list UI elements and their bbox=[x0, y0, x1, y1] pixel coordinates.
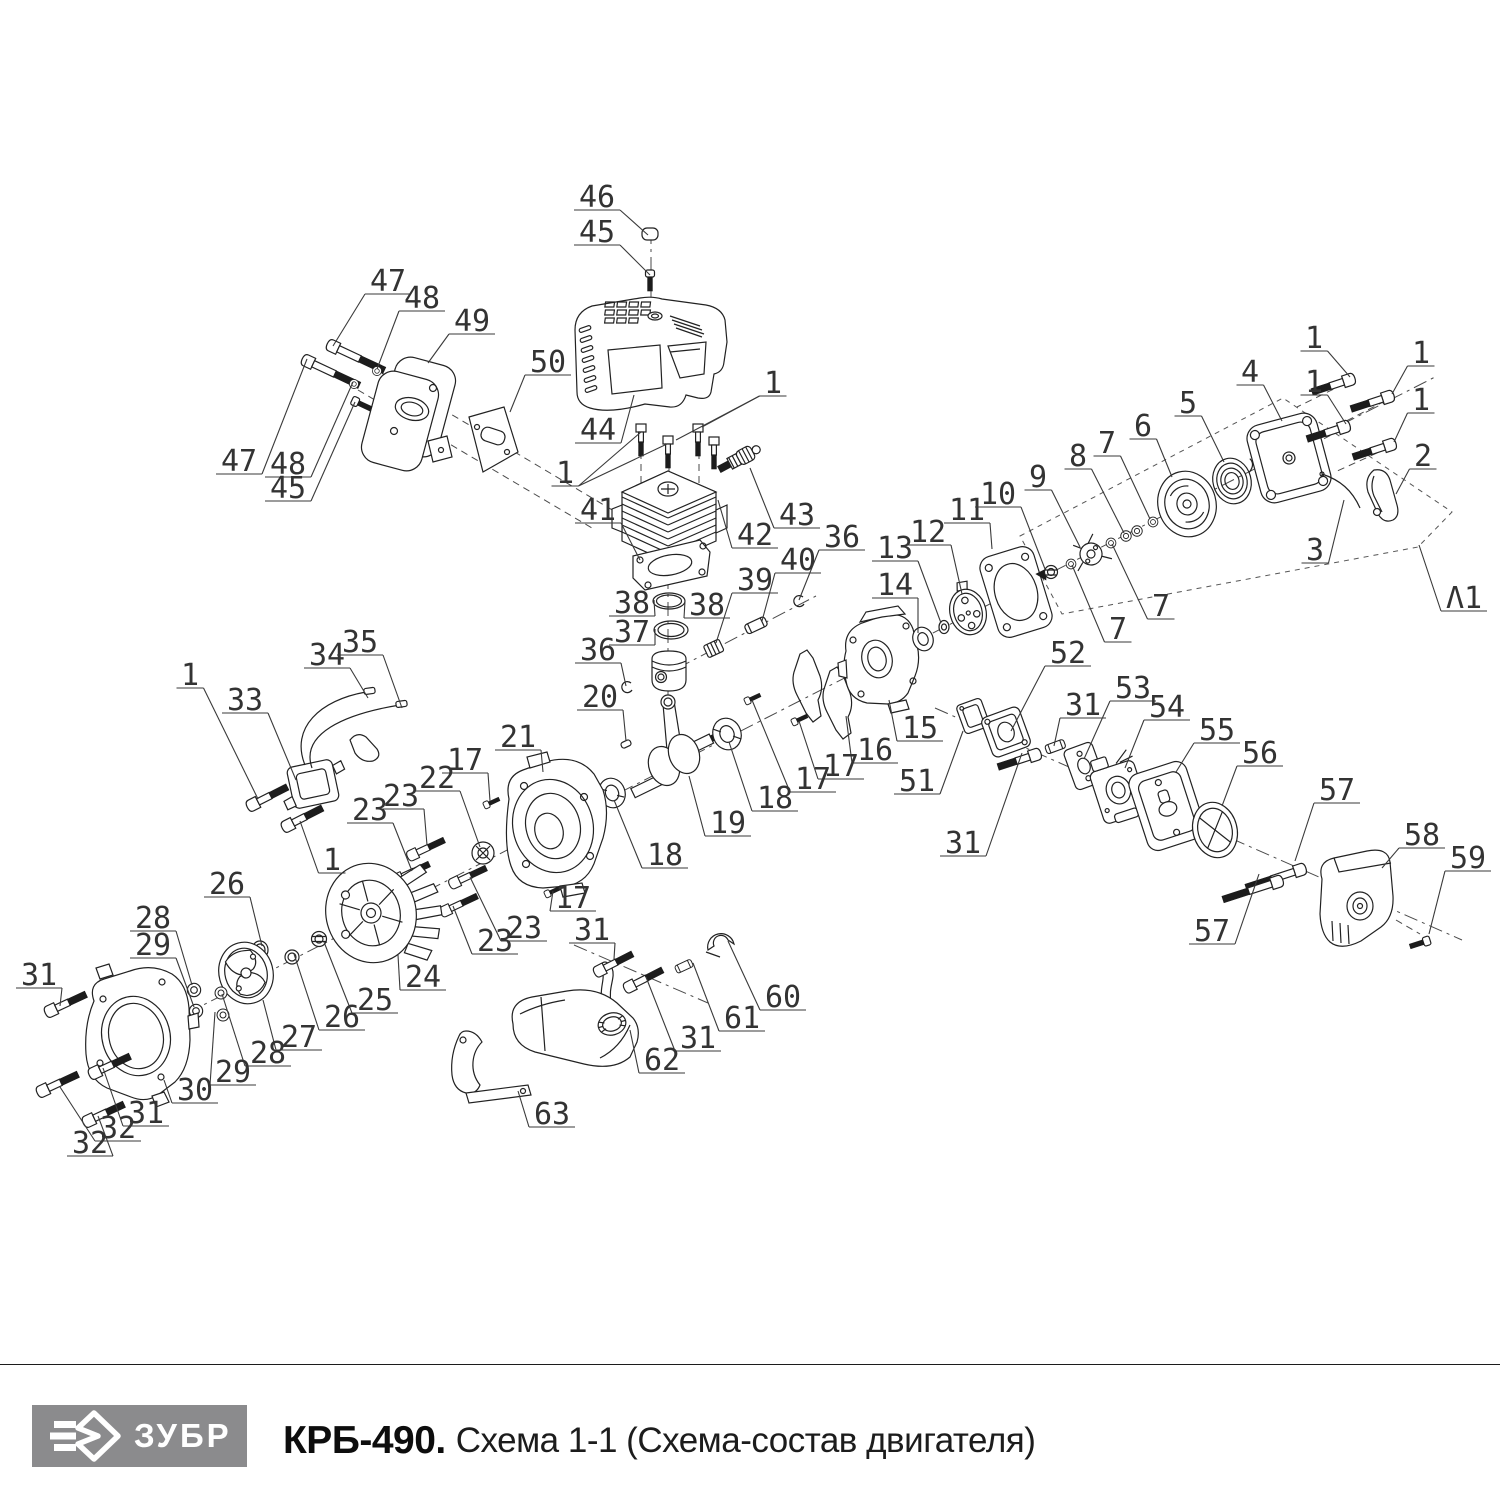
svg-text:26: 26 bbox=[209, 867, 245, 902]
svg-text:53: 53 bbox=[1115, 671, 1151, 706]
svg-text:28: 28 bbox=[250, 1036, 286, 1071]
part-cover-screw-45 bbox=[646, 270, 655, 291]
svg-text:38: 38 bbox=[689, 588, 725, 623]
callout-59: 59 bbox=[1429, 841, 1491, 934]
svg-text:24: 24 bbox=[405, 960, 441, 995]
part-filter-bolts-57 bbox=[1221, 862, 1308, 905]
svg-text:58: 58 bbox=[1404, 818, 1440, 853]
part-starter-handle-2 bbox=[1367, 470, 1398, 521]
zubr-bison-icon bbox=[32, 1405, 132, 1467]
part-crankcase-half-21 bbox=[502, 752, 606, 897]
callout-20: 20 bbox=[577, 680, 626, 741]
svg-text:45: 45 bbox=[270, 471, 306, 506]
svg-text:60: 60 bbox=[765, 980, 801, 1015]
callout-1: 1 bbox=[1394, 383, 1435, 442]
callout-35: 35 bbox=[337, 625, 402, 708]
svg-text:33: 33 bbox=[227, 683, 263, 718]
part-tank-bolts-31 bbox=[592, 949, 665, 995]
svg-text:47: 47 bbox=[370, 264, 406, 299]
svg-text:31: 31 bbox=[1065, 688, 1101, 723]
footer-divider bbox=[0, 1364, 1500, 1365]
svg-text:12: 12 bbox=[910, 515, 946, 550]
callout-31: 31 bbox=[16, 958, 62, 1006]
page: 4645474849504748454411434241383837394036… bbox=[0, 0, 1500, 1500]
callout-63: 63 bbox=[518, 1091, 575, 1132]
svg-text:39: 39 bbox=[737, 563, 773, 598]
svg-text:9: 9 bbox=[1029, 460, 1047, 495]
svg-text:23: 23 bbox=[383, 779, 419, 814]
callout-19: 19 bbox=[689, 776, 751, 841]
svg-text:18: 18 bbox=[647, 838, 683, 873]
scheme-title: КРБ-490. Схема 1-1 (Схема-состав двигате… bbox=[283, 1416, 1035, 1466]
callout-layer: 4645474849504748454411434241383837394036… bbox=[16, 180, 1491, 1161]
part-rotor-plate-12 bbox=[943, 577, 992, 638]
callout-1: 1 bbox=[300, 821, 346, 878]
callout-45: 45 bbox=[574, 215, 650, 275]
part-washer-22 bbox=[472, 842, 494, 864]
svg-text:63: 63 bbox=[534, 1097, 570, 1132]
part-clutch-nut-25 bbox=[312, 932, 327, 947]
svg-text:1: 1 bbox=[1305, 365, 1323, 400]
svg-text:41: 41 bbox=[580, 493, 616, 528]
callout-58: 58 bbox=[1382, 818, 1445, 868]
svg-text:42: 42 bbox=[737, 518, 773, 553]
callout-26: 26 bbox=[204, 867, 262, 946]
svg-text:8: 8 bbox=[1069, 439, 1087, 474]
svg-text:49: 49 bbox=[454, 304, 490, 339]
svg-text:6: 6 bbox=[1134, 409, 1152, 444]
svg-text:31: 31 bbox=[680, 1021, 716, 1056]
part-starter-housing-4 bbox=[1244, 410, 1334, 506]
svg-text:2: 2 bbox=[1414, 439, 1432, 474]
svg-text:48: 48 bbox=[404, 281, 440, 316]
callout-3: 3 bbox=[1302, 500, 1345, 568]
part-top-cap-46 bbox=[642, 228, 658, 240]
part-starter-gasket-11 bbox=[977, 544, 1055, 641]
svg-text:40: 40 bbox=[780, 543, 816, 578]
callout-17: 17 bbox=[550, 881, 596, 916]
part-crankcase-half-15 bbox=[838, 606, 919, 713]
callout-31: 31 bbox=[1054, 688, 1106, 746]
svg-text:1: 1 bbox=[764, 366, 782, 401]
part-ignition-coil-33 bbox=[277, 756, 350, 811]
svg-text:18: 18 bbox=[757, 781, 793, 816]
part-pin-61 bbox=[674, 959, 693, 974]
part-ignition-wires-34-35 bbox=[301, 687, 407, 768]
callout-38: 38 bbox=[684, 588, 730, 623]
svg-text:16: 16 bbox=[857, 733, 893, 768]
callout-24: 24 bbox=[398, 955, 446, 995]
svg-text:1: 1 bbox=[1412, 336, 1430, 371]
part-muffler-gasket-50 bbox=[469, 407, 518, 472]
callout-1: 1 bbox=[177, 658, 259, 799]
svg-text:10: 10 bbox=[980, 477, 1016, 512]
svg-text:30: 30 bbox=[177, 1073, 213, 1108]
svg-text:52: 52 bbox=[1050, 636, 1086, 671]
callout-55: 55 bbox=[1176, 713, 1240, 772]
svg-text:7: 7 bbox=[1152, 589, 1170, 624]
svg-text:1: 1 bbox=[181, 658, 199, 693]
callout-57: 57 bbox=[1295, 773, 1360, 861]
svg-text:57: 57 bbox=[1194, 914, 1230, 949]
part-spark-plug-43 bbox=[716, 441, 764, 476]
callout-47: 47 bbox=[333, 264, 411, 346]
callout-18: 18 bbox=[729, 742, 798, 816]
brand-name: ЗУБР bbox=[134, 1417, 232, 1455]
svg-text:54: 54 bbox=[1149, 690, 1185, 725]
svg-text:20: 20 bbox=[582, 680, 618, 715]
svg-text:47: 47 bbox=[221, 444, 257, 479]
svg-text:3: 3 bbox=[1306, 533, 1324, 568]
svg-text:1: 1 bbox=[323, 843, 341, 878]
callout-Λ1: Λ1 bbox=[1419, 545, 1487, 616]
svg-text:36: 36 bbox=[580, 633, 616, 668]
svg-text:22: 22 bbox=[419, 761, 455, 796]
part-piston-pin-40 bbox=[744, 616, 768, 634]
model-number: КРБ-490. bbox=[283, 1419, 446, 1463]
svg-text:4: 4 bbox=[1241, 355, 1259, 390]
svg-text:35: 35 bbox=[342, 625, 378, 660]
callout-18: 18 bbox=[614, 800, 688, 873]
svg-text:27: 27 bbox=[281, 1020, 317, 1055]
callout-33: 33 bbox=[222, 683, 296, 780]
svg-text:23: 23 bbox=[506, 911, 542, 946]
svg-text:51: 51 bbox=[899, 764, 935, 799]
svg-text:61: 61 bbox=[724, 1001, 760, 1036]
brand-logo: ЗУБР bbox=[32, 1405, 247, 1467]
svg-text:56: 56 bbox=[1242, 736, 1278, 771]
part-cover-screw-59 bbox=[1409, 936, 1432, 951]
svg-text:57: 57 bbox=[1319, 773, 1355, 808]
svg-text:26: 26 bbox=[324, 1000, 360, 1035]
svg-text:43: 43 bbox=[779, 498, 815, 533]
callout-2: 2 bbox=[1396, 439, 1437, 494]
callout-6: 6 bbox=[1130, 409, 1173, 477]
part-intake-manifold-52 bbox=[980, 705, 1032, 758]
svg-text:5: 5 bbox=[1179, 386, 1197, 421]
svg-text:29: 29 bbox=[135, 928, 171, 963]
svg-text:23: 23 bbox=[352, 793, 388, 828]
part-piston-rings-38-37 bbox=[653, 593, 688, 639]
callout-50: 50 bbox=[510, 345, 571, 412]
svg-text:37: 37 bbox=[614, 615, 650, 650]
svg-text:50: 50 bbox=[530, 345, 566, 380]
svg-text:21: 21 bbox=[500, 720, 536, 755]
svg-text:1: 1 bbox=[1305, 321, 1323, 356]
svg-text:25: 25 bbox=[357, 983, 393, 1018]
callout-31: 31 bbox=[940, 753, 1022, 861]
svg-text:14: 14 bbox=[877, 568, 913, 603]
svg-text:15: 15 bbox=[902, 711, 938, 746]
svg-text:55: 55 bbox=[1199, 713, 1235, 748]
callout-4: 4 bbox=[1237, 355, 1283, 421]
svg-text:1: 1 bbox=[1412, 383, 1430, 418]
scheme-caption: Схема 1-1 (Схема-состав двигателя) bbox=[456, 1421, 1036, 1461]
part-fuel-tank-62 bbox=[512, 962, 638, 1066]
svg-text:17: 17 bbox=[795, 762, 831, 797]
svg-text:44: 44 bbox=[580, 413, 616, 448]
svg-text:31: 31 bbox=[574, 913, 610, 948]
svg-text:7: 7 bbox=[1098, 426, 1116, 461]
svg-text:45: 45 bbox=[579, 215, 615, 250]
svg-text:13: 13 bbox=[877, 531, 913, 566]
callout-31: 31 bbox=[569, 913, 615, 959]
svg-text:59: 59 bbox=[1450, 841, 1486, 876]
part-cylinder-screws-1 bbox=[636, 424, 719, 469]
exploded-view-diagram: 4645474849504748454411434241383837394036… bbox=[0, 0, 1500, 1386]
part-piston-37 bbox=[652, 651, 686, 691]
svg-text:32: 32 bbox=[72, 1126, 108, 1161]
svg-text:Λ1: Λ1 bbox=[1446, 581, 1482, 616]
part-needle-bearing-39 bbox=[703, 639, 724, 658]
svg-text:7: 7 bbox=[1109, 612, 1127, 647]
svg-text:62: 62 bbox=[644, 1043, 680, 1078]
svg-text:29: 29 bbox=[215, 1055, 251, 1090]
svg-text:36: 36 bbox=[824, 520, 860, 555]
svg-text:46: 46 bbox=[579, 180, 615, 215]
svg-text:19: 19 bbox=[710, 806, 746, 841]
part-engine-cover-44 bbox=[575, 297, 727, 410]
callout-7: 7 bbox=[1072, 565, 1132, 647]
svg-text:1: 1 bbox=[556, 456, 574, 491]
part-airfilter-cover-58 bbox=[1320, 850, 1393, 946]
svg-text:31: 31 bbox=[945, 826, 981, 861]
svg-text:31: 31 bbox=[21, 958, 57, 993]
svg-text:17: 17 bbox=[555, 881, 591, 916]
